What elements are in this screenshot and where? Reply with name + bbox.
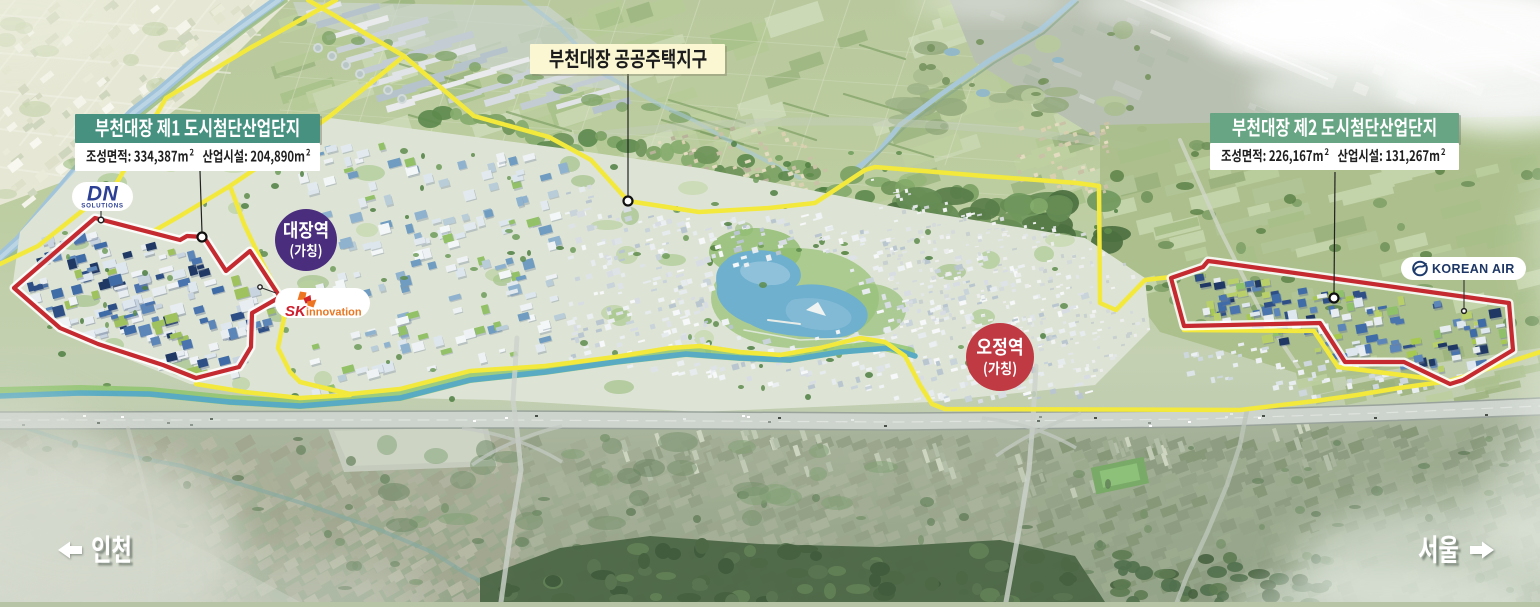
svg-text:KOREAN AIR: KOREAN AIR xyxy=(1432,262,1515,276)
svg-text:innovation: innovation xyxy=(306,307,362,319)
svg-text:SK: SK xyxy=(285,303,307,320)
svg-text:SOLUTIONS: SOLUTIONS xyxy=(81,203,123,210)
